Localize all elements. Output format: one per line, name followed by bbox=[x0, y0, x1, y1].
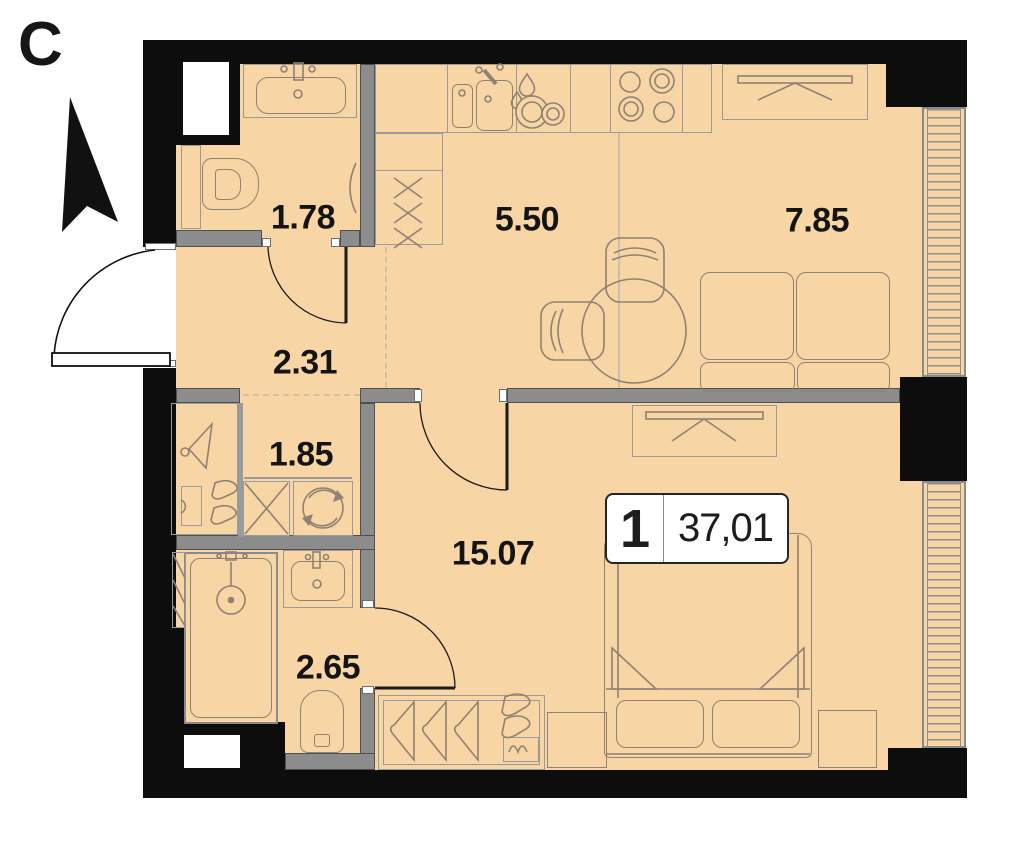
floor-plan: С bbox=[0, 0, 1016, 843]
closet-hanger-icon bbox=[181, 424, 237, 524]
garment-icons bbox=[502, 694, 530, 752]
door-bathroom-bottom bbox=[375, 608, 455, 688]
door-bedroom bbox=[420, 403, 507, 490]
vent-shaft-hatch bbox=[173, 554, 185, 626]
cabinet-x-marks bbox=[394, 178, 422, 248]
hanger-icon bbox=[391, 702, 478, 760]
unit-rooms-count: 1 bbox=[607, 495, 663, 562]
room-label-bathroom-top: 1.78 bbox=[271, 199, 335, 238]
crossed-cabinet-x bbox=[245, 483, 288, 534]
wardrobe-rail-icon bbox=[646, 76, 852, 441]
room-label-bedroom: 15.07 bbox=[452, 535, 535, 574]
kitchen-faucet-icon bbox=[459, 64, 503, 102]
room-label-hallway: 2.31 bbox=[273, 344, 337, 383]
plan-icons-overlay bbox=[0, 0, 1016, 843]
stove-icon bbox=[619, 69, 674, 122]
door-bathroom-top bbox=[268, 247, 346, 323]
unit-info-badge: 1 37,01 bbox=[605, 493, 789, 564]
north-arrow-icon bbox=[62, 97, 118, 232]
shower-head-icon bbox=[217, 552, 247, 614]
dining-table-icon bbox=[582, 279, 686, 383]
entrance-door-arc bbox=[52, 250, 170, 366]
room-label-living: 7.85 bbox=[785, 202, 849, 241]
chair-icon bbox=[541, 238, 664, 360]
blanket-fold bbox=[606, 535, 810, 754]
dish-drying-icon bbox=[512, 74, 565, 128]
washing-machine-icon bbox=[302, 488, 344, 528]
towel-radiator-icon bbox=[350, 163, 356, 213]
room-label-kitchen: 5.50 bbox=[495, 201, 559, 240]
room-label-bathroom-bottom: 2.65 bbox=[296, 649, 360, 688]
sink-faucet-icon bbox=[281, 63, 329, 588]
room-label-closet: 1.85 bbox=[269, 436, 333, 475]
unit-total-area: 37,01 bbox=[664, 495, 787, 562]
